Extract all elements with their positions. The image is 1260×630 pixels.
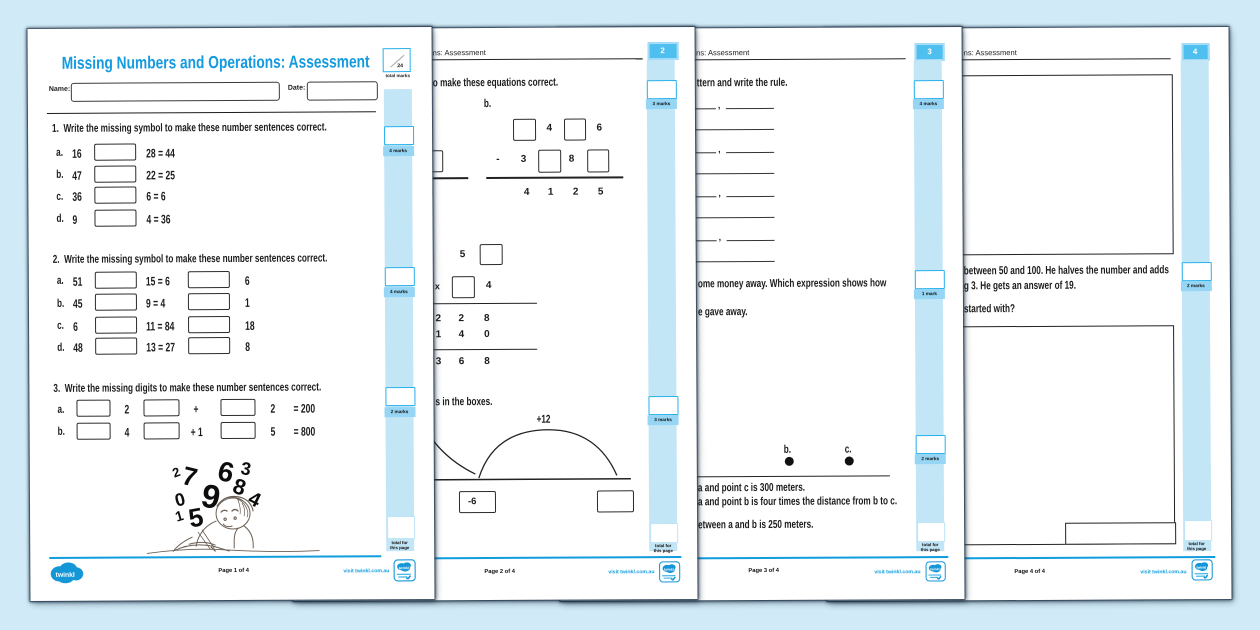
svg-text:24: 24: [397, 63, 403, 69]
svg-text:twinkl: twinkl: [399, 566, 409, 570]
svg-text:twinkl: twinkl: [56, 572, 75, 579]
svg-text:7: 7: [179, 460, 200, 493]
svg-text:9: 9: [198, 476, 223, 516]
svg-text:twinkl: twinkl: [663, 568, 673, 572]
svg-text:1: 1: [173, 507, 185, 525]
svg-text:2: 2: [170, 464, 182, 481]
svg-text:twinkl: twinkl: [930, 567, 939, 571]
svg-text:4: 4: [245, 488, 265, 513]
svg-text:twinkl: twinkl: [1196, 566, 1206, 570]
